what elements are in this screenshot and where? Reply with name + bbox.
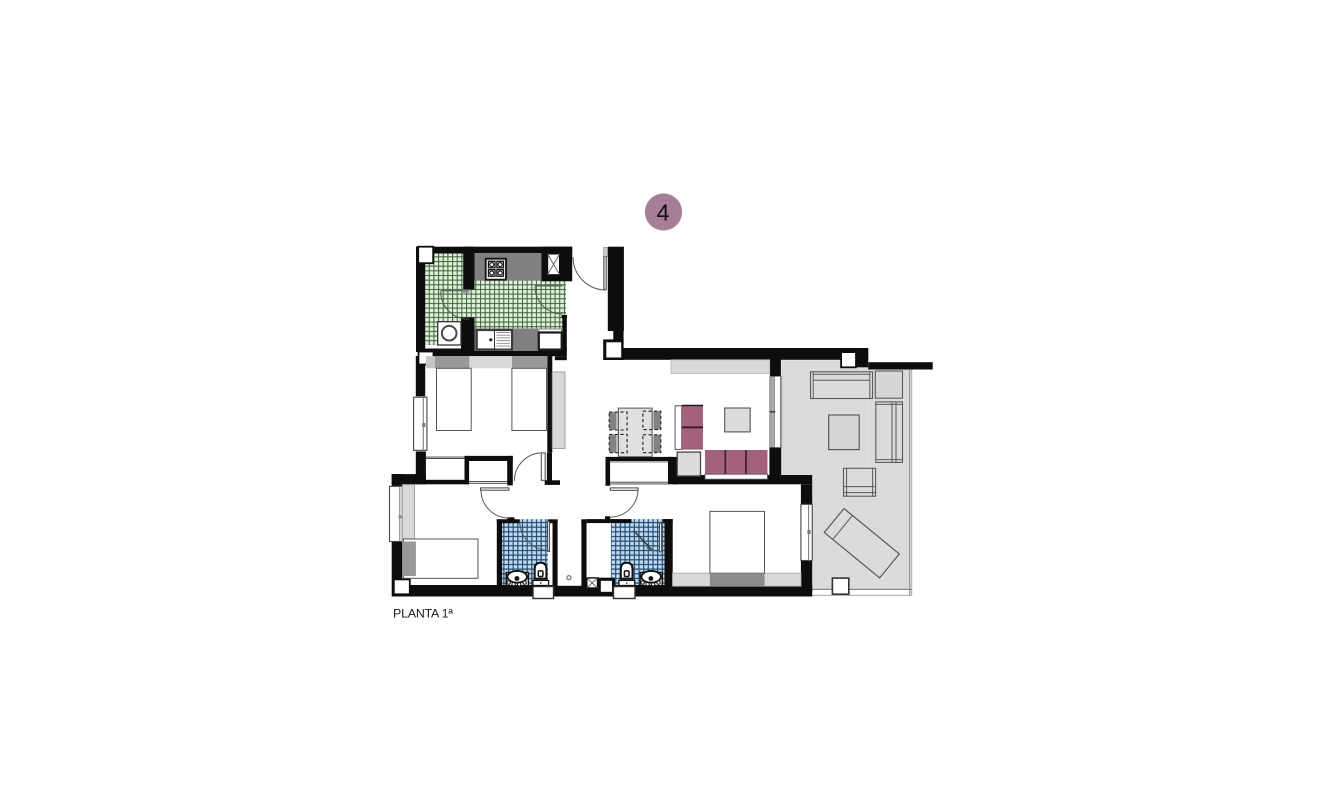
svg-text:4: 4: [656, 200, 669, 226]
svg-text:PLANTA 1ª: PLANTA 1ª: [393, 607, 453, 621]
